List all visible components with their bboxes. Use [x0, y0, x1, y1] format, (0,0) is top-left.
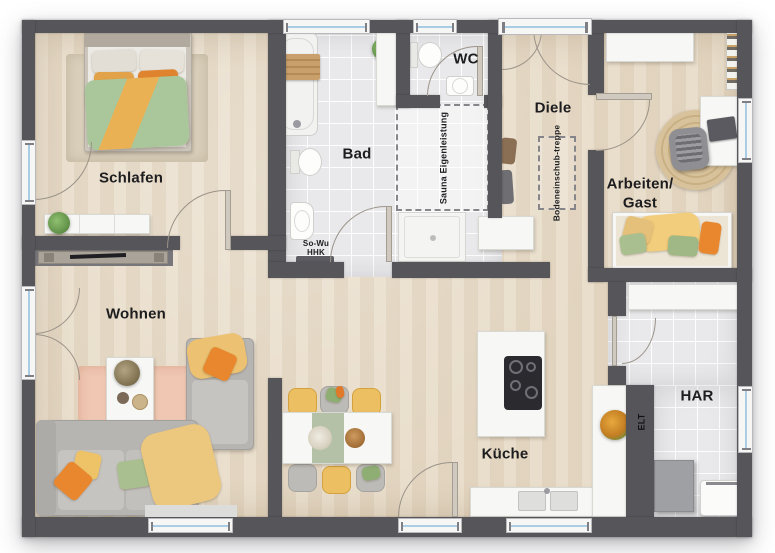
wall — [228, 236, 286, 250]
shower-drain — [430, 235, 436, 241]
tv-speaker — [44, 253, 54, 262]
sideboard-divider — [114, 215, 115, 233]
kitchen-faucet — [544, 488, 550, 494]
har-window — [738, 386, 753, 453]
washing-machine-panel — [706, 482, 738, 485]
wall — [268, 262, 344, 278]
wall — [268, 378, 282, 517]
office-window — [738, 98, 753, 163]
wall — [396, 95, 440, 108]
bed-pillow-left — [91, 49, 136, 73]
heat-pump — [654, 460, 694, 512]
har-door-leaf — [612, 316, 617, 366]
bathroom-cabinet — [376, 30, 398, 106]
sideboard-divider — [79, 215, 80, 233]
floor-plan: Schlafen Wohnen Bad WC Diele Arbeiten/Ga… — [22, 20, 752, 537]
office-sideboard — [606, 30, 694, 62]
room-label-diele: Diele — [535, 100, 572, 119]
bathtub-faucet — [293, 120, 301, 128]
bedroom-plant — [48, 212, 70, 234]
dining-chair — [322, 466, 351, 494]
burner — [526, 362, 536, 372]
dining-chair — [288, 464, 317, 492]
room-label-kueche: Küche — [482, 446, 529, 465]
wall — [608, 366, 626, 385]
wc-window — [413, 19, 457, 34]
living-room-window-west — [21, 286, 36, 380]
daybed-pillow-green — [619, 232, 648, 255]
room-label-arbeiten-gast: Arbeiten/Gast — [607, 175, 674, 213]
hall-sideboard — [478, 216, 534, 250]
living-window-sill — [145, 505, 237, 517]
kitchen-sink-right — [550, 491, 578, 511]
burner — [509, 360, 523, 374]
room-label-wc: WC — [453, 51, 478, 70]
wall — [22, 236, 180, 250]
wall — [392, 262, 550, 278]
annotation-sauna: Sauna Eigenleistung — [438, 112, 449, 204]
room-label-har: HAR — [680, 388, 713, 407]
washbasin-bad-bowl — [294, 210, 310, 232]
bathroom-door-leaf — [386, 206, 392, 262]
terrace-door-leaf — [452, 462, 458, 517]
decor-bowl — [117, 392, 129, 404]
coffee-table-plant — [114, 360, 140, 386]
decor-tray — [132, 394, 148, 410]
toilet-bad-bowl — [298, 148, 322, 176]
bed-duvet — [84, 75, 190, 150]
annotation-elt: ELT — [636, 414, 647, 431]
exterior-wall-top — [22, 20, 752, 33]
bedroom-window — [21, 140, 36, 205]
sofa-armrest — [36, 420, 56, 516]
floor-plan-screenshot: Schlafen Wohnen Bad WC Diele Arbeiten/Ga… — [0, 0, 775, 553]
terrace-door-window — [398, 518, 462, 533]
wall — [608, 282, 626, 316]
living-room-window-south — [148, 518, 233, 533]
burner — [525, 386, 538, 399]
wall — [488, 20, 502, 218]
bed-headboard — [84, 32, 190, 47]
laptop — [707, 116, 738, 142]
wall — [626, 385, 654, 517]
toilet-wc-cistern — [410, 42, 418, 68]
exterior-wall-bottom — [22, 517, 752, 537]
bathroom-window — [283, 19, 370, 34]
office-door-leaf — [596, 93, 652, 100]
kitchen-sink-left — [518, 491, 546, 511]
kitchen-window — [506, 518, 592, 533]
har-shelf — [628, 284, 738, 310]
bedroom-door-leaf — [225, 190, 231, 250]
entry-door — [498, 18, 592, 35]
room-label-schlafen: Schlafen — [99, 170, 163, 189]
tv-speaker — [154, 253, 164, 262]
burner — [510, 380, 521, 391]
room-label-wohnen: Wohnen — [106, 306, 166, 325]
table-bowl — [345, 428, 365, 448]
table-flowers — [308, 426, 332, 450]
room-label-bad: Bad — [343, 146, 372, 165]
wall — [588, 150, 604, 282]
annotation-loft-ladder: Bodeneinschub-treppe — [552, 125, 563, 222]
desk-chair-pillow — [675, 133, 704, 164]
exterior-wall-left — [22, 20, 35, 537]
wall — [268, 20, 286, 262]
daybed-pillow-green — [667, 235, 698, 257]
annotation-sowu-hhk: So-WuHHK — [303, 239, 329, 257]
wall — [588, 268, 752, 282]
